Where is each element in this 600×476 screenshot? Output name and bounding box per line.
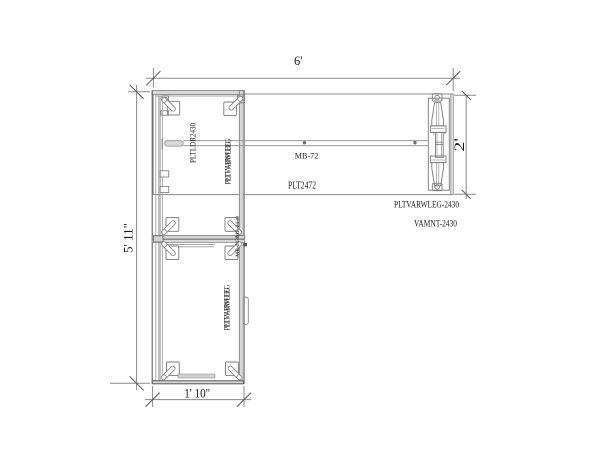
svg-text:PLTVARWLEG-2430: PLTVARWLEG-2430: [394, 200, 459, 210]
svg-text:PLTVARWLEG: PLTVARWLEG: [223, 284, 232, 327]
svg-text:PLTLDR2430: PLTLDR2430: [189, 123, 198, 163]
svg-text:PLT2472: PLT2472: [288, 181, 316, 192]
svg-text:2': 2': [452, 138, 468, 152]
svg-text:1' 10": 1' 10": [184, 386, 210, 400]
svg-text:VAMNT-2430: VAMNT-2430: [414, 219, 457, 229]
svg-text:5' 11": 5' 11": [122, 223, 136, 253]
svg-text:MB-72: MB-72: [295, 152, 319, 161]
svg-text:6': 6': [294, 54, 303, 68]
svg-text:PLTVARWLEG: PLTVARWLEG: [224, 138, 233, 181]
svg-text:MB-2430: MB-2430: [235, 235, 241, 257]
svg-text:MB-2430: MB-2430: [235, 216, 241, 238]
